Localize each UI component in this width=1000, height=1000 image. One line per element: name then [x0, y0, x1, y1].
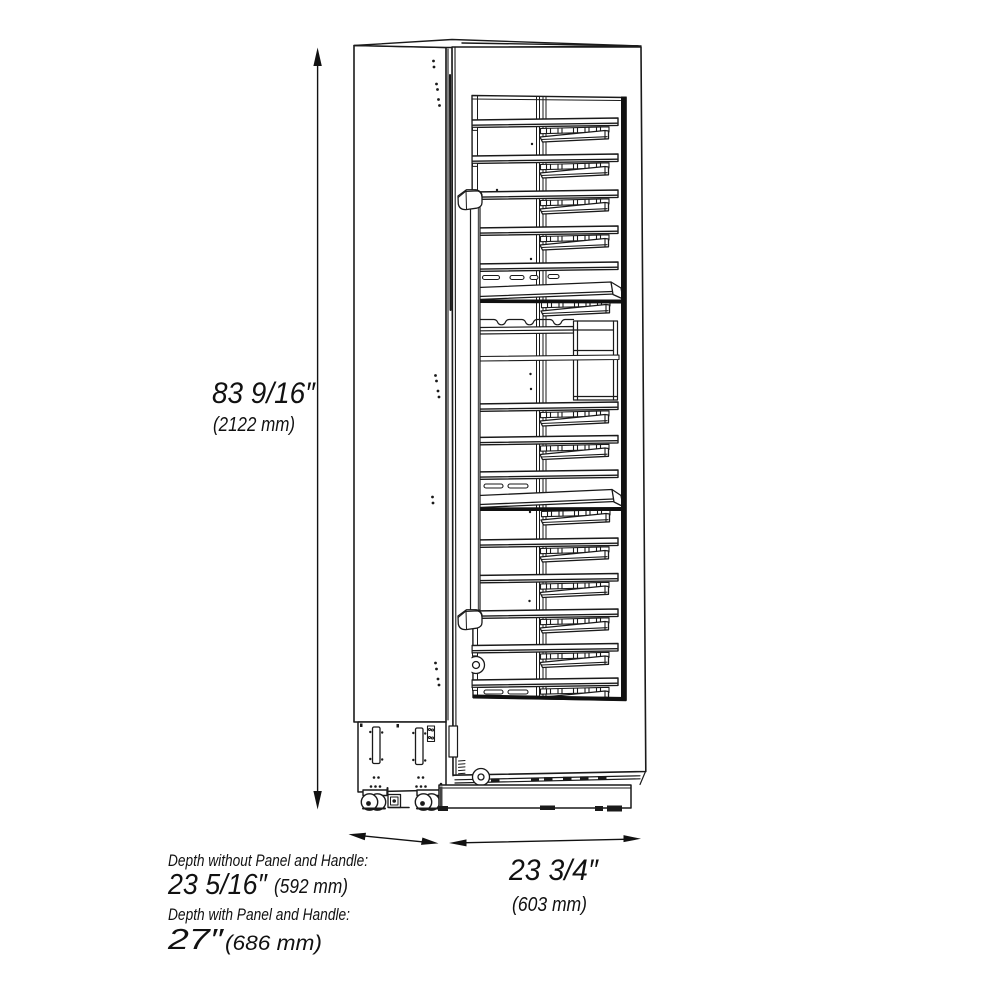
svg-text:Depth without Panel and Handle: Depth without Panel and Handle: — [168, 851, 368, 870]
svg-text:27″: 27″ — [167, 924, 226, 956]
svg-text:83 9/16″: 83 9/16″ — [212, 377, 316, 410]
svg-text:23 5/16″: 23 5/16″ — [167, 869, 269, 901]
svg-text:(686 mm): (686 mm) — [225, 932, 322, 955]
svg-text:(603 mm): (603 mm) — [512, 894, 587, 916]
svg-text:Depth with Panel and Handle:: Depth with Panel and Handle: — [168, 905, 350, 924]
svg-text:(592 mm): (592 mm) — [274, 876, 348, 898]
svg-text:(2122 mm): (2122 mm) — [213, 414, 295, 436]
svg-text:23 3/4″: 23 3/4″ — [508, 854, 599, 887]
